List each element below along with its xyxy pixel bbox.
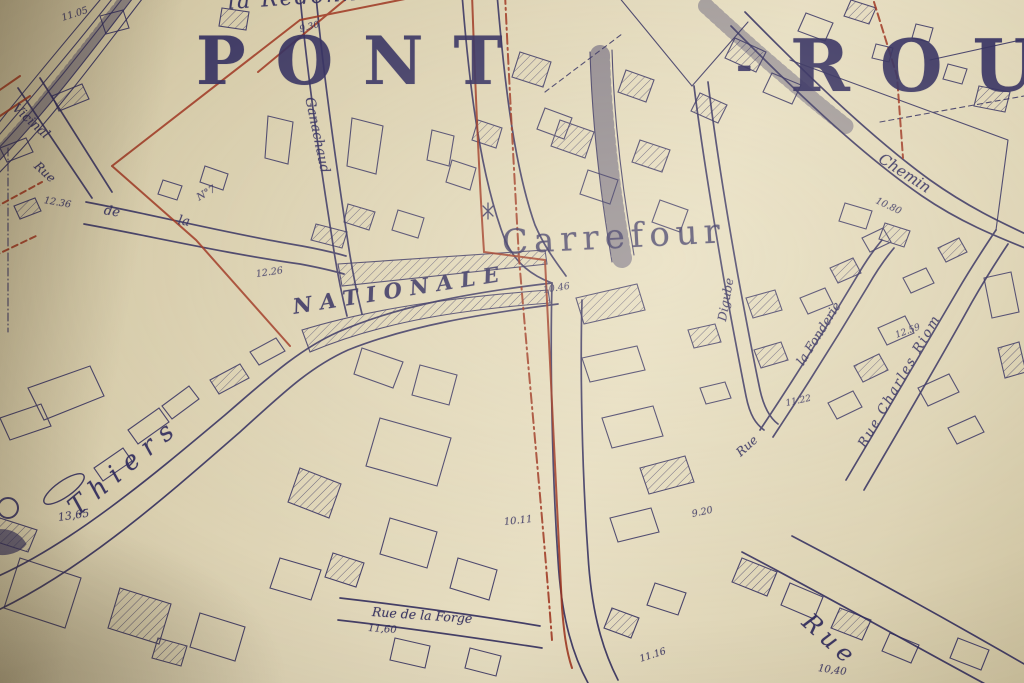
- map-title-rou: ROU: [790, 30, 1024, 102]
- map-title-separator: -: [736, 46, 753, 86]
- map-title-pont: PONT: [196, 28, 533, 94]
- map-photo: la Redonnière 9.30 11.05 PONT - ROU Vici…: [0, 0, 1024, 683]
- street-label-la: la: [177, 214, 191, 229]
- street-label-de: de: [103, 204, 121, 220]
- elevation-11-60: 11,60: [368, 624, 397, 636]
